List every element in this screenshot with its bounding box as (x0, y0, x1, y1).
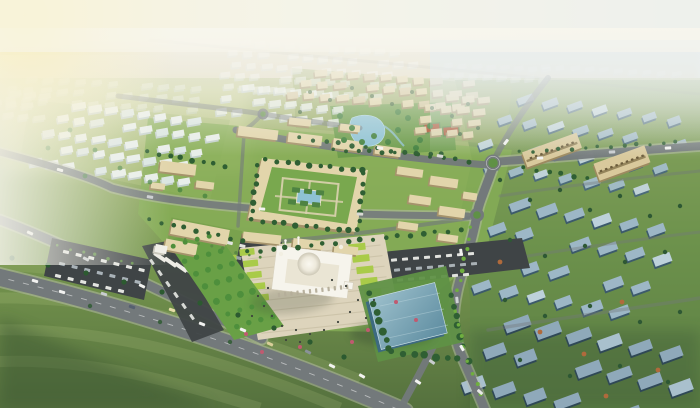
arcade-column (302, 290, 305, 295)
tree (445, 355, 451, 361)
row-item (471, 262, 477, 266)
tree (245, 249, 249, 253)
tree (357, 198, 363, 204)
person (267, 287, 269, 289)
tree (307, 339, 312, 344)
tree (295, 245, 301, 251)
tree (237, 308, 242, 313)
person (365, 317, 367, 319)
row-item (446, 254, 452, 258)
arcade-column (327, 287, 330, 292)
tree (205, 267, 211, 273)
flower-bush (366, 328, 370, 332)
tree (195, 237, 200, 242)
tree (254, 181, 259, 186)
tree (258, 317, 263, 322)
row-item (427, 266, 433, 270)
tree (225, 294, 232, 301)
person (271, 315, 273, 317)
tree (467, 237, 471, 241)
tree (282, 245, 287, 250)
tree (460, 268, 465, 273)
tree (121, 279, 126, 284)
row-item (463, 273, 469, 277)
tree (249, 288, 256, 295)
tree (309, 243, 313, 247)
arcade-column (284, 292, 287, 297)
tree (234, 251, 238, 255)
arcade-column (321, 287, 324, 292)
person (373, 299, 375, 301)
tree (454, 355, 460, 361)
tree (181, 225, 186, 230)
tree (237, 291, 244, 298)
tree (498, 260, 503, 265)
tree (350, 167, 356, 173)
row-item (413, 256, 419, 260)
tree (585, 176, 589, 180)
tree (568, 374, 572, 378)
tree (263, 157, 267, 161)
tree (206, 231, 210, 235)
tree (229, 261, 235, 267)
tree (250, 200, 256, 206)
tree (370, 301, 376, 307)
campus-masterplan-rendering (0, 0, 700, 408)
hedge (300, 200, 308, 206)
person (281, 325, 283, 327)
tree (375, 317, 382, 324)
row-item (449, 264, 455, 268)
tree (558, 188, 562, 192)
aerial-rendering-stage (0, 0, 700, 408)
tree (225, 312, 230, 317)
tree (454, 313, 460, 319)
tree (469, 226, 472, 229)
tree (588, 304, 592, 308)
tree (213, 298, 220, 305)
arcade-column (333, 286, 336, 291)
row-item (460, 263, 466, 267)
car (357, 212, 364, 215)
tree (171, 244, 176, 249)
tree (197, 300, 202, 305)
tree (328, 164, 333, 169)
row-item (468, 252, 474, 256)
row-item (452, 274, 458, 278)
tree (211, 161, 216, 166)
tree (159, 289, 164, 294)
tree (457, 323, 461, 327)
car (259, 207, 266, 210)
tree (395, 233, 400, 238)
tree (251, 209, 255, 213)
person (323, 329, 325, 331)
tree (420, 351, 427, 358)
main-dome (298, 253, 321, 276)
tree (421, 231, 427, 237)
tree (379, 328, 387, 336)
tree (248, 254, 251, 257)
tree (333, 241, 338, 246)
tree (455, 288, 459, 292)
tree (357, 237, 363, 243)
tree (558, 171, 563, 176)
tree (508, 238, 512, 242)
tree (271, 325, 276, 330)
tree (656, 368, 661, 373)
tree (583, 244, 587, 248)
tree (460, 334, 464, 338)
row-item (435, 255, 441, 259)
tree (666, 380, 670, 384)
tree (498, 178, 502, 182)
tree (88, 304, 92, 308)
tree (228, 237, 233, 242)
person (349, 311, 351, 313)
roundabout-south (470, 208, 484, 222)
person (337, 321, 339, 323)
flower-bush (394, 300, 398, 304)
tree (341, 354, 346, 359)
tree (216, 233, 220, 237)
sky-veil (0, 0, 700, 52)
tree (189, 158, 195, 164)
tree (292, 222, 298, 228)
tree (461, 257, 465, 261)
flower-bush (244, 332, 248, 336)
tree (178, 188, 183, 193)
flower-bush (298, 345, 302, 349)
tree (259, 256, 262, 259)
person (257, 295, 259, 297)
tree (466, 360, 469, 363)
tree (184, 238, 187, 241)
tree (648, 214, 652, 218)
roundabout-island (473, 211, 481, 219)
tree (366, 290, 372, 296)
tree (459, 279, 462, 282)
tree (543, 254, 547, 258)
tree (336, 227, 342, 233)
tree (411, 351, 418, 358)
tree (528, 198, 532, 202)
tree (538, 330, 543, 335)
tree (678, 310, 682, 314)
person (345, 285, 347, 287)
tree (678, 204, 682, 208)
tree (206, 251, 211, 256)
tree (638, 320, 642, 324)
tree (240, 238, 245, 243)
tree (446, 230, 451, 235)
tree (223, 164, 228, 169)
tree (433, 230, 437, 234)
tree (272, 220, 277, 225)
tree (274, 160, 279, 165)
corner-dome (279, 252, 283, 256)
row-item (402, 257, 408, 261)
tree (197, 242, 200, 245)
hedge (316, 190, 324, 196)
tree (258, 249, 263, 254)
arcade-column (340, 285, 343, 290)
arcade-column (278, 293, 281, 298)
tree (408, 233, 413, 238)
row-item (391, 258, 397, 262)
tree (249, 305, 254, 310)
tree (295, 160, 301, 166)
tree (400, 351, 406, 357)
corner-dome (339, 245, 343, 249)
flower-bush (350, 340, 354, 344)
tree (623, 260, 627, 264)
right-haze (430, 40, 700, 160)
tree (618, 194, 622, 198)
tree (217, 264, 223, 270)
hedge (288, 199, 296, 205)
tree (358, 219, 362, 223)
tree (202, 283, 208, 289)
arcade-column (296, 290, 299, 295)
row-item (394, 268, 400, 272)
tree (210, 244, 213, 247)
tree (254, 173, 259, 178)
person (299, 341, 301, 343)
tree (182, 258, 187, 263)
tree (371, 238, 375, 242)
tree (194, 254, 199, 259)
person (331, 279, 333, 281)
tree (465, 247, 469, 251)
tree (518, 358, 522, 362)
tree (355, 227, 360, 232)
tree (260, 220, 265, 225)
minaret-top (284, 239, 287, 242)
person (285, 339, 287, 341)
tree (360, 190, 365, 195)
tree (226, 276, 232, 282)
tree (238, 273, 244, 279)
tree (235, 312, 240, 317)
arcade-column (309, 289, 312, 294)
tree (620, 300, 625, 305)
tree (521, 165, 525, 169)
tree (449, 293, 454, 298)
tree (214, 279, 220, 285)
person (295, 329, 297, 331)
tree (319, 164, 323, 168)
tree (503, 298, 507, 302)
tree (361, 182, 366, 187)
flower-bush (260, 350, 264, 354)
tree (83, 270, 88, 275)
tree (384, 337, 390, 343)
tree (467, 160, 472, 165)
tree (459, 227, 464, 232)
tree (314, 224, 319, 229)
tree (547, 170, 552, 175)
tree (255, 163, 259, 167)
person (251, 315, 253, 317)
person (309, 333, 311, 335)
flower-bush (414, 318, 418, 322)
tree (193, 271, 199, 277)
arcade-column (290, 291, 293, 296)
tree (345, 227, 351, 233)
hedge (312, 202, 320, 208)
tree (221, 247, 224, 250)
tree (306, 162, 312, 168)
tree (582, 352, 587, 357)
tree (158, 320, 162, 324)
tree (384, 235, 389, 240)
tree (281, 220, 287, 226)
minaret-top (297, 236, 300, 239)
tree (388, 348, 394, 354)
tree (202, 160, 206, 164)
tree (361, 171, 365, 175)
tree (228, 340, 232, 344)
tree (339, 167, 344, 172)
tree (451, 304, 457, 310)
row-item (416, 266, 422, 270)
tree (305, 224, 309, 228)
tree (271, 247, 276, 252)
row-item (405, 267, 411, 271)
tree (604, 394, 609, 399)
tree (471, 372, 475, 376)
tree (203, 194, 208, 199)
row-item (424, 256, 430, 260)
tree (193, 229, 198, 234)
person (263, 305, 265, 307)
tree (543, 314, 547, 318)
tree (251, 189, 257, 195)
tree (286, 160, 291, 165)
tree (325, 227, 330, 232)
tree (171, 223, 176, 228)
tree (588, 208, 592, 212)
tree (618, 364, 622, 368)
tree (374, 309, 381, 316)
tree (534, 169, 538, 173)
hedge (292, 187, 300, 193)
tree (234, 324, 239, 329)
tree (320, 241, 325, 246)
tree (432, 354, 440, 362)
tree (454, 310, 457, 313)
arcade-column (315, 288, 318, 293)
tree (571, 174, 576, 179)
tree (663, 250, 667, 254)
tree (346, 239, 351, 244)
tree (476, 382, 480, 386)
person (357, 299, 359, 301)
tree (246, 320, 251, 325)
hedge (304, 188, 312, 194)
tree (249, 217, 253, 221)
